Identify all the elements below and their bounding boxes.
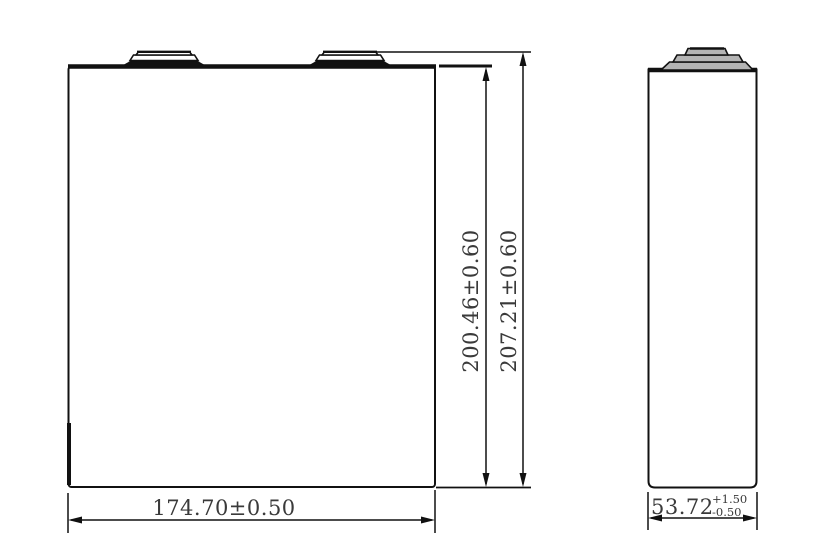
arrow-left-icon <box>68 517 82 524</box>
front-view <box>68 52 436 487</box>
side-cell-body <box>649 70 757 488</box>
arrow-right-icon <box>743 515 757 522</box>
dim-text-thickness-tol-minus: -0.50 <box>712 505 742 519</box>
terminal-base-tier <box>661 62 753 70</box>
front-terminal-right <box>304 52 396 68</box>
drawing-canvas: 200.46±0.60 207.21±0.60 174.70±0.50 <box>0 0 831 557</box>
dim-text-overall-height: 207.21±0.60 <box>497 229 521 372</box>
side-view <box>648 49 757 488</box>
dim-text-body-height: 200.46±0.60 <box>459 229 483 372</box>
side-thickness-dimension: 53.72 +1.50 -0.50 <box>648 492 757 530</box>
front-width-dimension: 174.70±0.50 <box>68 490 435 533</box>
terminal-lower-step <box>316 55 384 61</box>
arrow-down-icon <box>483 473 490 487</box>
arrow-up-icon <box>483 67 490 81</box>
dimension-drawing: 200.46±0.60 207.21±0.60 174.70±0.50 <box>0 0 831 557</box>
side-terminal <box>661 49 753 71</box>
dim-line-body-height <box>483 67 490 487</box>
terminal-middle-tier <box>673 55 743 62</box>
arrow-down-icon <box>520 473 527 487</box>
arrow-up-icon <box>520 52 527 66</box>
terminal-lower-step <box>130 55 198 61</box>
dim-text-thickness-tol-plus: +1.50 <box>712 492 747 506</box>
dim-text-width: 174.70±0.50 <box>152 496 295 520</box>
arrow-right-icon <box>421 517 435 524</box>
front-cell-body <box>69 67 436 488</box>
dim-text-thickness-value: 53.72 <box>651 495 714 519</box>
front-terminal-left <box>118 52 210 68</box>
